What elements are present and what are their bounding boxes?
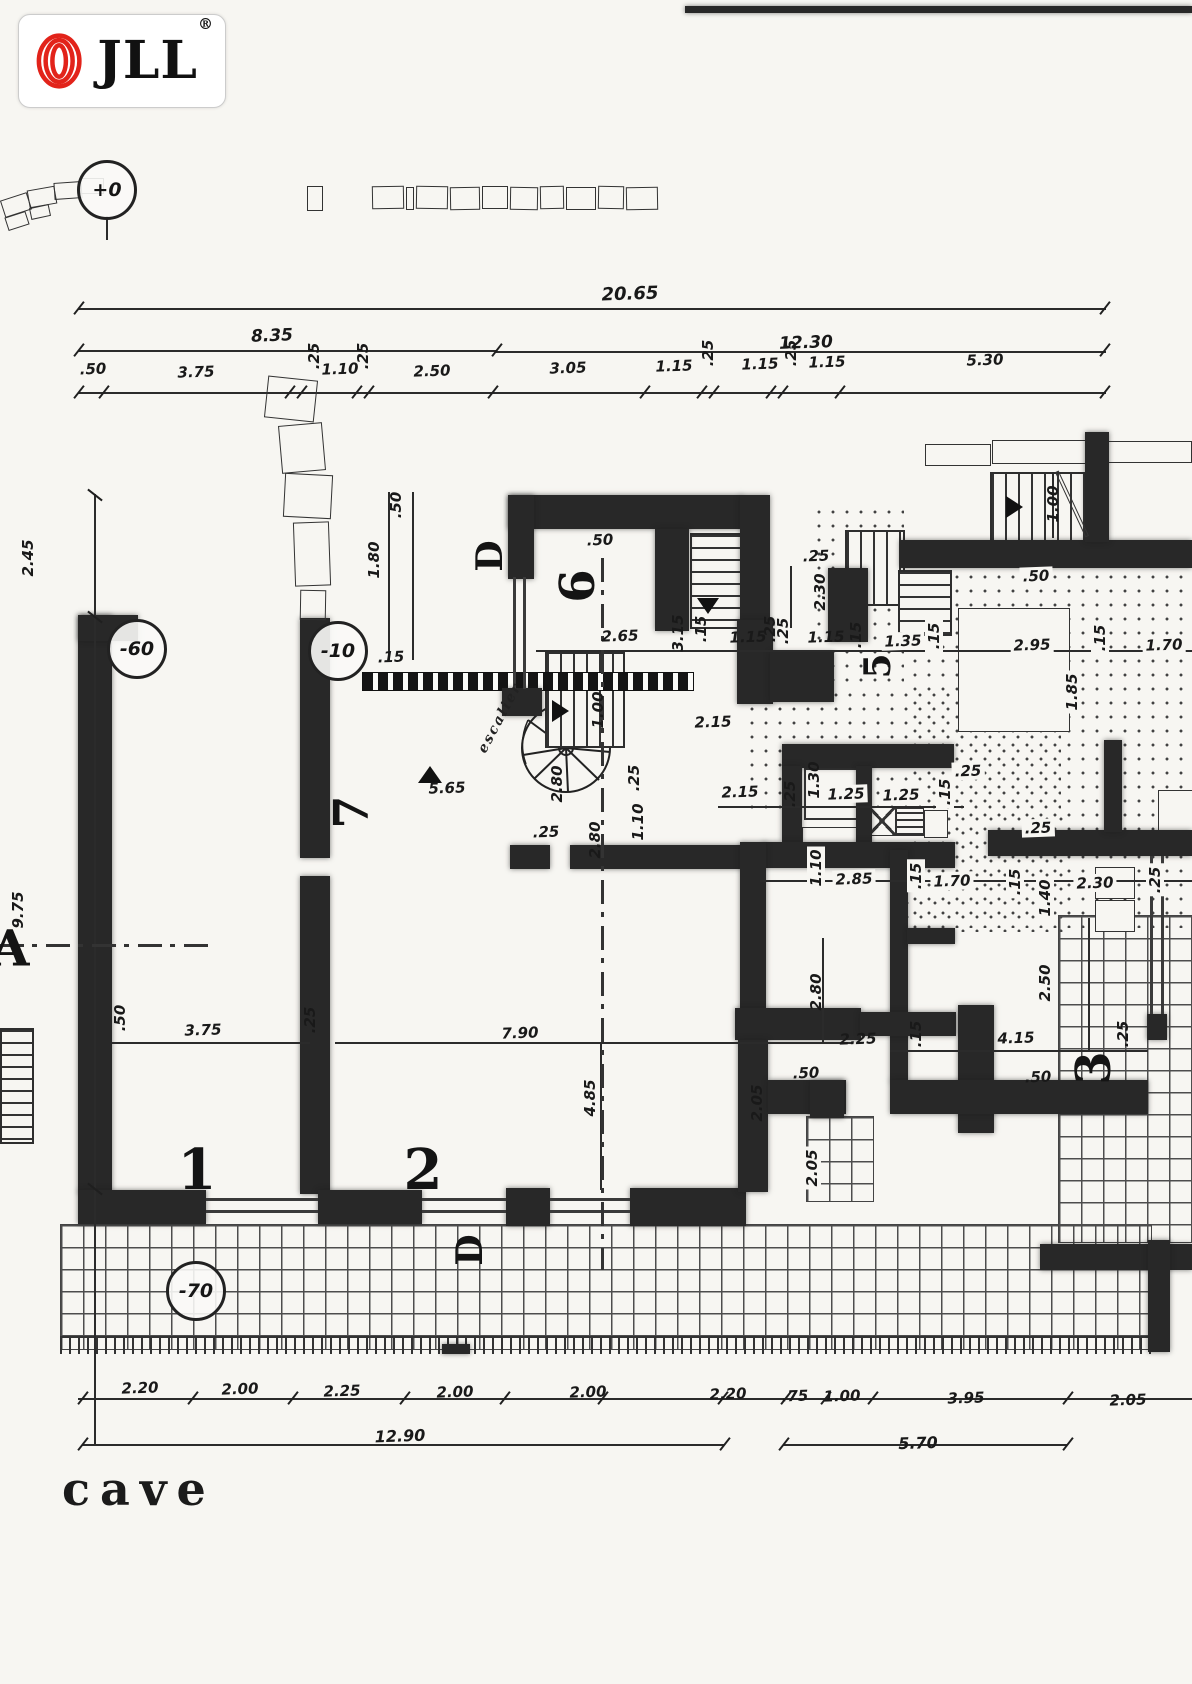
wall [988, 830, 1192, 856]
dim-label: 5.70 [898, 1433, 938, 1453]
dim-label: 4.85 [581, 1079, 599, 1116]
window-double-line [513, 577, 516, 689]
room-number: 7 [324, 795, 380, 828]
dim-label: .15 [1006, 866, 1024, 899]
wall [1104, 740, 1122, 832]
wall [1148, 1240, 1170, 1352]
dim-label: 1.00 [1044, 485, 1062, 522]
dim-label: 20.65 [601, 283, 659, 306]
wall [907, 928, 955, 944]
wall [506, 1188, 550, 1226]
dim-label: 3.75 [177, 362, 215, 381]
wall [630, 1188, 746, 1226]
wall [856, 766, 872, 844]
room-number: 3 [1066, 1051, 1122, 1084]
sketch-fragment [482, 186, 508, 209]
window-double-line [206, 1198, 318, 1201]
dim-label: .15 [692, 616, 710, 643]
wall [770, 652, 834, 702]
dim-label: 2.05 [748, 1084, 766, 1121]
dim-label: .25 [354, 343, 372, 370]
dimension-line [112, 1042, 310, 1044]
axis-line-d [601, 558, 604, 1270]
shower-fixture-icon [868, 806, 896, 836]
plan-title: cave [62, 1462, 216, 1516]
dim-label: 1.15 [729, 627, 767, 646]
dim-label: 1.25 [879, 785, 923, 804]
dim-label: 1.80 [365, 541, 383, 578]
sketch-fragment [293, 521, 331, 586]
dim-label: 3.95 [947, 1388, 985, 1407]
dim-label: 2.45 [19, 539, 37, 576]
dim-label: 1.70 [1142, 635, 1186, 654]
terrace-edge-hatch [60, 1336, 1152, 1354]
dimension-tick [1099, 343, 1110, 357]
dim-label: 1.00 [823, 1386, 861, 1405]
wall [900, 540, 1192, 568]
dim-label: 2.15 [718, 782, 762, 801]
level-marker: -10 [308, 621, 368, 681]
window-double-line [422, 1210, 506, 1213]
dim-label: 7.90 [501, 1023, 539, 1042]
dim-label: 2.80 [548, 765, 566, 802]
logo-card: JLL® [18, 14, 226, 108]
sketch-fragment [450, 187, 480, 211]
sketch-fragment [510, 187, 538, 210]
level-marker: -70 [166, 1261, 226, 1321]
wall [1085, 432, 1109, 542]
window-double-line [550, 1210, 630, 1213]
dim-label: 3.05 [549, 358, 587, 377]
window-double-line [550, 1198, 630, 1201]
wall [1147, 1014, 1167, 1040]
dim-label: .25 [1021, 818, 1054, 837]
axis-line-a [0, 944, 212, 947]
sketch-fragment [540, 186, 564, 209]
dim-label: 2.65 [601, 626, 639, 645]
sketch-fragment [566, 187, 596, 210]
stair-arrow-icon [697, 598, 719, 614]
dim-label: 1.10 [629, 803, 647, 840]
dim-label: 2.05 [803, 1146, 821, 1189]
dim-label: 2.80 [807, 973, 825, 1010]
dim-label: .25 [625, 765, 643, 792]
dimension-line [740, 1042, 852, 1044]
dim-label: 2.30 [1073, 873, 1117, 892]
axis-label: D [449, 1234, 491, 1265]
window-double-line [206, 1210, 318, 1213]
level-marker: -60 [107, 619, 167, 679]
dim-label: 2.25 [323, 1381, 361, 1400]
dim-label: 2.20 [121, 1378, 159, 1397]
dim-label: 1.15 [655, 356, 693, 375]
wall [685, 6, 1192, 13]
dim-label: .25 [532, 823, 559, 842]
sketch-fragment [264, 376, 318, 423]
level-marker: +0 [77, 160, 137, 220]
dim-label: .15 [925, 620, 943, 653]
dim-label: .15 [907, 860, 925, 893]
dim-label: 1.40 [1036, 876, 1054, 919]
logo-brand: JLL [97, 30, 198, 91]
registered-mark: ® [198, 15, 213, 33]
dim-label: 2.50 [413, 361, 451, 380]
wall [890, 1080, 1148, 1114]
dim-label: .15 [377, 648, 404, 667]
dimension-line [94, 494, 96, 1444]
dim-label: 1.15 [741, 354, 779, 373]
dim-label: .75 [781, 1387, 808, 1406]
dim-label: .25 [802, 547, 829, 566]
dim-label: 3.15 [669, 614, 687, 651]
dim-label: 2.15 [694, 712, 732, 731]
dim-label: .25 [1146, 864, 1164, 897]
dim-label: 2.00 [569, 1382, 607, 1401]
jll-logo-icon [31, 22, 87, 100]
sketch-fragment [29, 204, 51, 220]
dim-label: .25 [782, 340, 800, 367]
sketch-fragment [300, 590, 327, 620]
dim-label: 2.05 [1109, 1390, 1147, 1409]
sketch-fragment [406, 187, 414, 210]
sketch-fragment [283, 473, 333, 519]
dim-label: .25 [301, 1007, 319, 1034]
wall [740, 842, 766, 1010]
dim-label: 1.25 [824, 784, 868, 803]
wall [442, 1344, 470, 1354]
dim-label: 1.15 [807, 627, 845, 646]
dim-label: .50 [586, 531, 613, 550]
dim-label: .25 [699, 340, 717, 367]
floor-plan-page: JLL® cave 20.658.3512.30.503.75.251.10.2… [0, 0, 1192, 1684]
dim-label: 2.30 [811, 573, 829, 610]
dim-label: .50 [79, 360, 106, 379]
dim-label: .50 [387, 492, 405, 519]
axis-label: D [469, 540, 511, 571]
room-number: 6 [550, 569, 606, 602]
wall [508, 495, 534, 579]
dim-label: .15 [847, 622, 865, 649]
dim-label: 1.30 [805, 761, 823, 798]
dimension-line [78, 1398, 1192, 1400]
dimension-line [536, 650, 740, 652]
axis-label: A [0, 919, 29, 978]
wall [508, 495, 742, 529]
logo-wordmark: JLL® [97, 35, 213, 87]
wall [890, 850, 908, 1082]
dim-label: 1.00 [589, 691, 607, 728]
dim-label: 1.35 [881, 631, 925, 650]
dim-label: 2.95 [1010, 635, 1054, 654]
dim-label: .50 [111, 1005, 129, 1032]
wall [810, 1080, 844, 1118]
dim-label: .15 [1091, 622, 1109, 655]
dim-label: .50 [792, 1064, 819, 1083]
dim-label: .25 [1114, 1021, 1132, 1048]
dimension-line [78, 350, 496, 352]
dim-label: 5.65 [428, 778, 466, 797]
dimension-line [335, 1042, 740, 1044]
dim-label: .25 [781, 781, 799, 808]
dimension-line [1088, 918, 1090, 1052]
dim-label: .15 [907, 1021, 925, 1048]
window-double-line [523, 577, 526, 689]
dim-label: 2.00 [436, 1382, 474, 1401]
dimension-line [718, 806, 964, 808]
dimension-line [78, 308, 1106, 310]
stair-arrow-icon [1006, 496, 1023, 518]
dim-label: .50 [1024, 1068, 1051, 1087]
dim-label: 2.20 [709, 1384, 747, 1403]
dim-label: .25 [774, 618, 792, 645]
dim-label: .50 [1019, 566, 1052, 585]
dim-label: 2.80 [586, 821, 604, 858]
room-number: 5 [857, 653, 899, 678]
dimension-line [78, 392, 1106, 394]
room-number: 1 [178, 1137, 217, 1203]
sketch-fragment [626, 187, 658, 211]
dim-label: 2.50 [1036, 964, 1054, 1001]
dim-label: 2.85 [832, 869, 876, 888]
appliance-fixture-icon [896, 808, 924, 836]
room-outline-box [1095, 900, 1135, 932]
room-outline-box [992, 440, 1086, 464]
dim-label: 3.75 [184, 1020, 222, 1039]
dim-label: 5.30 [966, 350, 1004, 369]
wall [300, 876, 330, 1194]
dim-label: 1.70 [930, 871, 974, 890]
sketch-fragment [307, 186, 323, 211]
dim-label: .25 [951, 761, 984, 780]
dim-label: .15 [936, 776, 954, 809]
sketch-fragment [416, 186, 448, 210]
sketch-fragment [598, 186, 624, 209]
room-outline-box [925, 444, 991, 466]
room-outline-box [958, 608, 1070, 732]
dim-label: 8.35 [251, 325, 294, 346]
dimension-line [412, 492, 414, 660]
stair-treads [690, 533, 746, 629]
dim-label: 12.90 [374, 1426, 425, 1447]
stair-arrow-icon [552, 700, 569, 722]
dim-label: 4.15 [997, 1028, 1035, 1047]
wall [510, 845, 550, 869]
dim-label: 1.85 [1063, 670, 1081, 713]
dim-label: .25 [305, 343, 323, 370]
sketch-fragment [372, 186, 404, 210]
wall [763, 842, 955, 868]
dim-label: 1.10 [807, 846, 825, 889]
dim-label: 2.25 [839, 1029, 877, 1048]
dimension-line [740, 650, 1192, 652]
stair-treads [0, 1028, 34, 1144]
dim-label: 1.15 [808, 352, 846, 371]
dim-label: 2.00 [221, 1379, 259, 1398]
sketch-fragment [278, 422, 326, 474]
room-outline-box [924, 810, 948, 838]
room-number: 2 [404, 1137, 443, 1203]
